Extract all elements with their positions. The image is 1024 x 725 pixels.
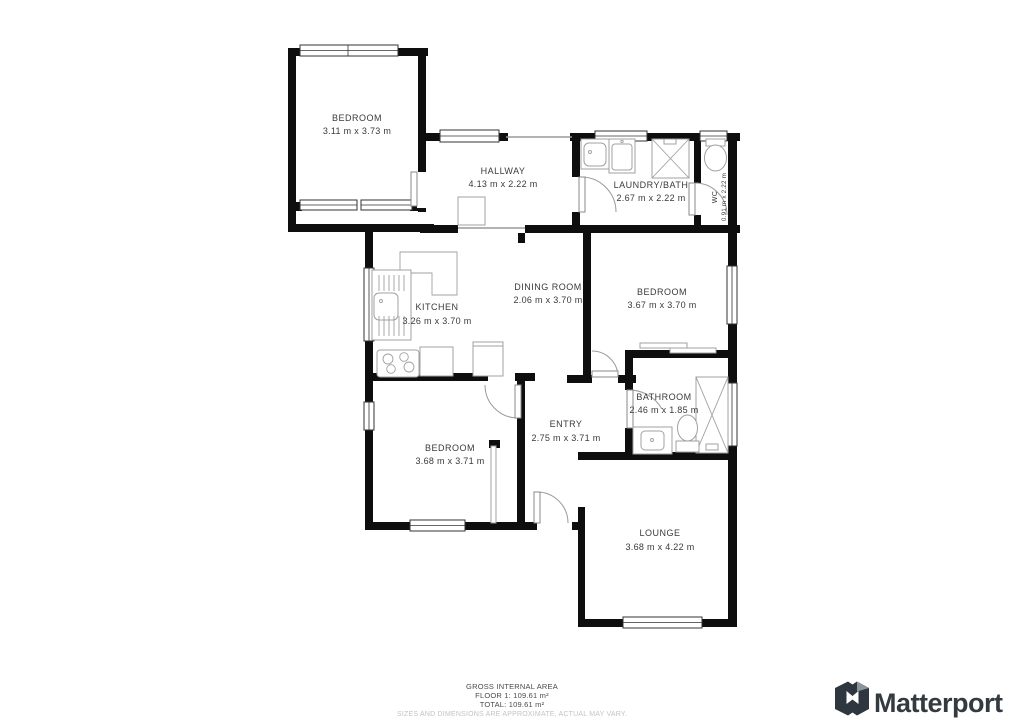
hall-closet	[458, 197, 485, 225]
window	[300, 200, 357, 210]
room-label-bedroom-r: BEDROOM 3.67 m x 3.70 m	[627, 287, 696, 310]
svg-text:3.67 m x 3.70 m: 3.67 m x 3.70 m	[627, 300, 696, 310]
window	[440, 130, 499, 142]
floorplan-canvas: BEDROOM 3.11 m x 3.73 m HALLWAY 4.13 m x…	[0, 0, 1024, 725]
window	[300, 45, 398, 56]
window	[410, 520, 465, 531]
stove	[377, 350, 419, 377]
fridge	[473, 342, 503, 376]
svg-text:HALLWAY: HALLWAY	[481, 166, 526, 176]
room-label-bedroom-tl: BEDROOM 3.11 m x 3.73 m	[323, 113, 391, 136]
svg-text:2.46 m x 1.85 m: 2.46 m x 1.85 m	[629, 405, 698, 415]
disclaimer-text: SIZES AND DIMENSIONS ARE APPROXIMATE, AC…	[397, 711, 627, 718]
window	[364, 402, 374, 430]
washing-machine	[609, 139, 635, 173]
svg-text:3.11 m x 3.73 m: 3.11 m x 3.73 m	[323, 126, 391, 136]
room-label-bedroom-bl: BEDROOM 3.68 m x 3.71 m	[415, 443, 484, 466]
closet-slider-bedroom-bl	[491, 446, 496, 523]
door-laundry	[579, 177, 616, 212]
window	[727, 266, 737, 324]
svg-text:2.67 m x 2.22 m: 2.67 m x 2.22 m	[616, 193, 685, 203]
total-area-line: TOTAL: 109.61 m²	[480, 700, 545, 709]
shower	[652, 139, 689, 178]
kitchen-sink-unit	[372, 270, 411, 340]
gross-internal-area-title: GROSS INTERNAL AREA	[466, 682, 558, 691]
kitchen-cabinet	[420, 347, 453, 376]
svg-text:3.68 m x 4.22 m: 3.68 m x 4.22 m	[625, 542, 694, 552]
laundry-sink	[581, 139, 609, 169]
room-label-dining-room: DINING ROOM 2.06 m x 3.70 m	[513, 282, 582, 305]
svg-text:2.75 m x 3.71 m: 2.75 m x 3.71 m	[531, 433, 600, 443]
floor-area-line: FLOOR 1: 109.61 m²	[475, 691, 549, 700]
matterport-logo: Matterport	[835, 682, 1003, 719]
svg-text:BATHROOM: BATHROOM	[636, 392, 691, 402]
svg-text:LOUNGE: LOUNGE	[639, 528, 680, 538]
svg-text:ENTRY: ENTRY	[550, 419, 583, 429]
svg-text:WC: WC	[712, 191, 719, 203]
bathroom-toilet	[676, 415, 699, 452]
bath-tub	[696, 377, 728, 453]
svg-text:BEDROOM: BEDROOM	[637, 287, 687, 297]
room-label-kitchen: KITCHEN 3.26 m x 3.70 m	[402, 302, 471, 326]
room-label-hallway: HALLWAY 4.13 m x 2.22 m	[468, 166, 537, 189]
door-bedroom-r	[592, 351, 618, 377]
svg-text:LAUNDRY/BATH: LAUNDRY/BATH	[614, 180, 689, 190]
room-label-entry: ENTRY 2.75 m x 3.71 m	[531, 419, 600, 443]
window	[623, 617, 702, 628]
matterport-logo-icon	[835, 682, 869, 716]
room-label-bathroom: BATHROOM 2.46 m x 1.85 m	[629, 392, 698, 415]
door-bedroom-tl	[411, 172, 427, 208]
svg-text:BEDROOM: BEDROOM	[332, 113, 382, 123]
svg-text:BEDROOM: BEDROOM	[425, 443, 475, 453]
room-label-wc: WC 0.91 m x 2.22 m	[712, 173, 728, 221]
window	[361, 200, 412, 210]
wc-toilet	[705, 139, 727, 171]
svg-text:4.13 m x 2.22 m: 4.13 m x 2.22 m	[468, 179, 537, 189]
footer-area: GROSS INTERNAL AREA FLOOR 1: 109.61 m² T…	[397, 682, 627, 718]
svg-text:3.26 m x 3.70 m: 3.26 m x 3.70 m	[402, 316, 471, 326]
vanity-sink	[633, 427, 672, 454]
room-label-lounge: LOUNGE 3.68 m x 4.22 m	[625, 528, 694, 552]
svg-text:3.68 m x 3.71 m: 3.68 m x 3.71 m	[415, 456, 484, 466]
matterport-logo-text: Matterport	[874, 688, 1003, 718]
door-entry-front	[534, 492, 568, 523]
svg-text:KITCHEN: KITCHEN	[415, 302, 458, 312]
door-bedroom-bl	[485, 385, 521, 418]
svg-text:0.91 m x 2.22 m: 0.91 m x 2.22 m	[721, 173, 728, 221]
svg-text:2.06 m x 3.70 m: 2.06 m x 3.70 m	[513, 295, 582, 305]
svg-text:DINING ROOM: DINING ROOM	[514, 282, 582, 292]
room-label-laundry-bath: LAUNDRY/BATH 2.67 m x 2.22 m	[614, 180, 689, 203]
